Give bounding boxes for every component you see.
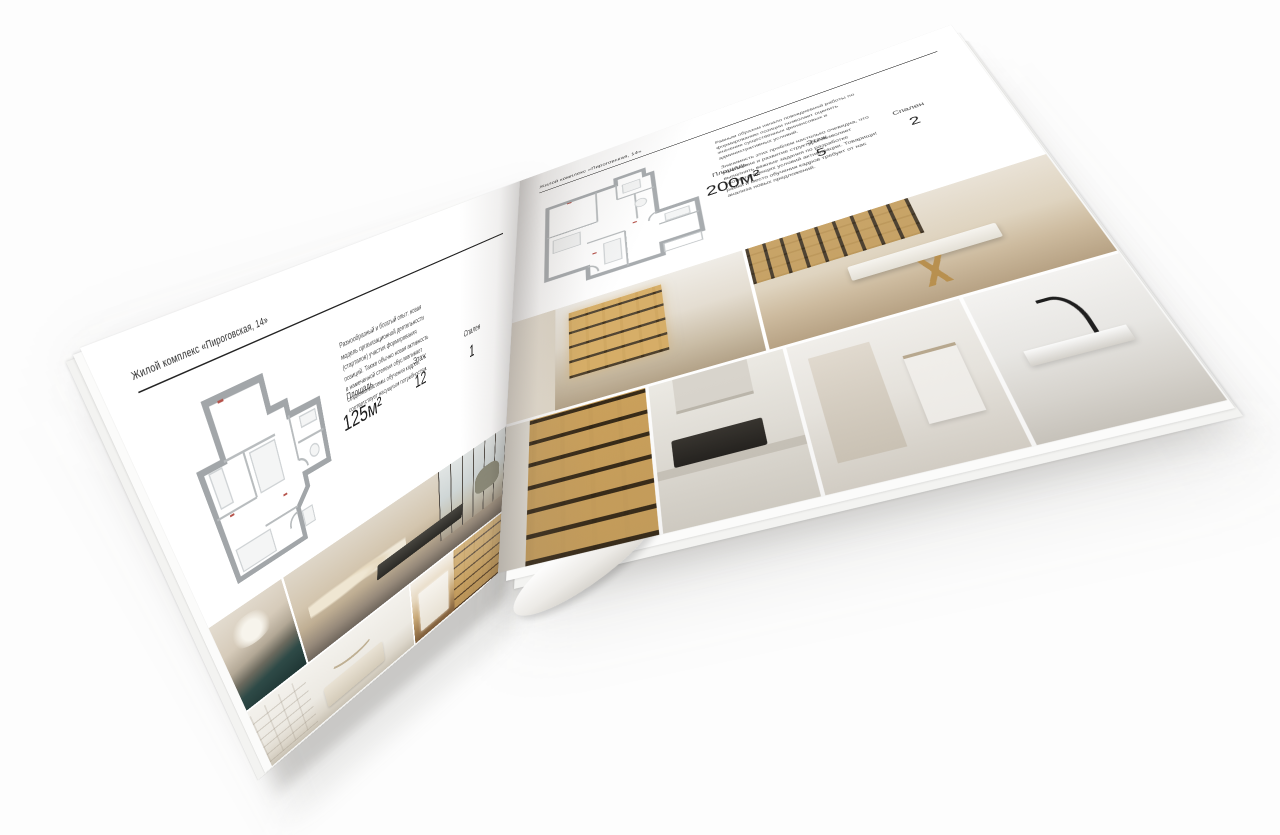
wall xyxy=(506,310,555,425)
stat-bedrooms: Спален 2 xyxy=(891,100,934,132)
stat-floor: Этаж 12 xyxy=(413,350,427,394)
stat-bedrooms: Спален 1 xyxy=(464,321,481,366)
stat-bedrooms-value: 1 xyxy=(464,337,480,365)
stat-floor-value: 12 xyxy=(414,367,427,393)
header-rule xyxy=(138,233,503,394)
stat-bedrooms-label: Спален xyxy=(464,321,481,340)
lit-cabinet xyxy=(569,284,670,378)
niche xyxy=(807,341,907,463)
magazine-mockup: Жилой комплекс «Пироговская, 14» Разнооб… xyxy=(0,0,1280,835)
flowers xyxy=(224,600,277,657)
towel xyxy=(902,342,986,424)
